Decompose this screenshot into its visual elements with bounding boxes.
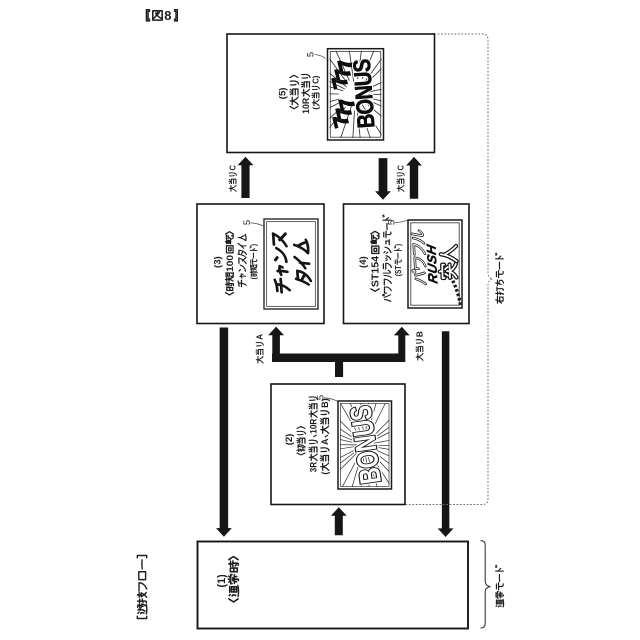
svg-text:): )	[249, 243, 259, 246]
svg-text:B: B	[415, 331, 424, 337]
svg-text:(: (	[249, 277, 259, 280]
svg-text:C): C)	[311, 75, 320, 84]
svg-text:(4): (4)	[358, 256, 369, 268]
svg-text:(5): (5)	[277, 88, 288, 100]
svg-text:BONUS: BONUS	[348, 59, 380, 129]
svg-text:RUSH: RUSH	[424, 243, 441, 285]
svg-text:(: (	[311, 107, 320, 110]
svg-text:(ST: (ST	[393, 265, 403, 276]
svg-text:): )	[393, 243, 403, 246]
svg-text:(: (	[320, 471, 330, 475]
svg-text:C: C	[228, 165, 237, 171]
svg-text:A: A	[320, 438, 330, 445]
svg-text:100: 100	[225, 254, 236, 271]
svg-text:A: A	[255, 334, 264, 340]
svg-text:C: C	[396, 165, 405, 171]
svg-text:ST154: ST154	[371, 256, 382, 287]
svg-text:10R: 10R	[301, 97, 311, 113]
svg-text:10R: 10R	[308, 418, 319, 434]
svg-text:5: 5	[305, 52, 316, 57]
svg-text:(1): (1)	[216, 574, 228, 588]
svg-text:(3): (3)	[212, 256, 223, 268]
svg-text:B): B)	[320, 398, 330, 408]
svg-text:(2): (2)	[284, 434, 295, 446]
svg-text:3R: 3R	[308, 461, 319, 472]
